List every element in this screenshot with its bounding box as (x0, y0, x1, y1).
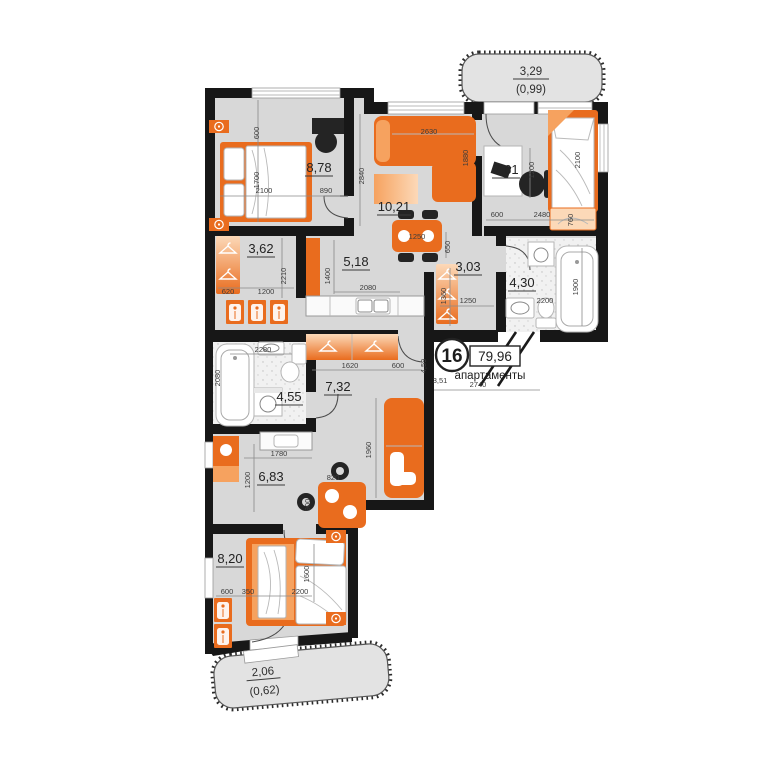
toilet2 (281, 362, 299, 382)
room-label-living: 10,21 (378, 199, 411, 214)
room-label-kitchen2: 6,83 (258, 469, 283, 484)
room-label-bathroom1: 4,30 (509, 275, 534, 290)
pillow (224, 184, 244, 216)
chair (398, 253, 414, 262)
chair (422, 210, 438, 219)
window-bedroom1 (252, 88, 340, 98)
dim: 1600 (302, 566, 311, 583)
unit-area: 79,96 (478, 349, 512, 364)
room-label-corridor: 7,32 (325, 379, 350, 394)
floorplan-apartment: 3,29 (0,99) 2,06 (0,62) (0, 0, 768, 768)
dim: 2200 (537, 296, 554, 305)
dim: 2630 (421, 127, 438, 136)
radiator-icon (209, 120, 229, 133)
radiator-icon (326, 612, 346, 625)
sofa-chaise (432, 162, 476, 202)
dim: 620 (222, 287, 235, 296)
dim: 890 (320, 186, 333, 195)
dim: 1200 (243, 472, 252, 489)
cabinet-icon (270, 300, 288, 324)
sink (506, 298, 534, 318)
pillow (224, 148, 244, 180)
dim: 1960 (364, 442, 373, 459)
kitchen-cabinet (306, 238, 320, 296)
room-label-kitchen: 5,18 (343, 254, 368, 269)
dim: 600 (252, 127, 261, 140)
sofa-cushion (390, 472, 416, 485)
room-label-bedroom1: 8,78 (306, 160, 331, 175)
dim: 650 (443, 241, 452, 254)
unit-number: 16 (441, 346, 462, 367)
unit-type: апартаменты (455, 370, 526, 382)
radiator-icon (209, 218, 229, 231)
dim: 2480 (534, 210, 551, 219)
toilet-tank (536, 318, 556, 328)
dim: 2840 (357, 168, 366, 185)
dim: 1250 (460, 296, 477, 305)
balcony-top-coeff: (0,99) (516, 84, 546, 96)
counter-sink (274, 435, 298, 447)
toilet2-tank (292, 344, 306, 364)
window-living (388, 102, 464, 114)
dim: 2080 (213, 370, 222, 387)
cabinet-icon (214, 598, 232, 622)
dim: 2100 (256, 186, 273, 195)
unit-stamp: 16 79,96 апартаменты (436, 339, 525, 382)
dim: 2200 (292, 587, 309, 596)
balcony-bottom-area: 2,06 (251, 665, 274, 679)
room-label-hall: 3,03 (455, 259, 480, 274)
dim: 1250 (409, 232, 426, 241)
dim: 820 (327, 473, 340, 482)
dim: 2080 (360, 283, 377, 292)
window-kitchen2 (205, 442, 213, 468)
table2 (318, 482, 366, 528)
radiator-icon (326, 530, 346, 543)
dim: 1200 (258, 287, 275, 296)
tv-stand (315, 131, 337, 153)
dim: 1900 (571, 279, 580, 296)
dim: 600 (221, 587, 234, 596)
dim: 1360 (439, 288, 448, 305)
plate (325, 489, 339, 503)
cabinet-icon (226, 300, 244, 324)
dim: 600 (392, 361, 405, 370)
dim: 760 (566, 214, 575, 227)
cabinet-sink (220, 444, 232, 456)
dim: 1400 (323, 268, 332, 285)
room-label-bedroom3: 8,20 (217, 551, 242, 566)
cabinet-icon (214, 624, 232, 648)
dim: 900 (303, 499, 312, 512)
plate (343, 505, 357, 519)
balcony-bottom: 2,06 (0,62) (212, 642, 390, 709)
room-label-bathroom2: 4,55 (276, 389, 301, 404)
dim: 1620 (342, 361, 359, 370)
room-label-bedroom2: 7,61 (493, 162, 518, 177)
dim: 600 (491, 210, 504, 219)
dim: 1880 (461, 150, 470, 167)
balcony-top-area: 3,29 (520, 66, 542, 78)
kitchen2-cabinet-low (213, 466, 239, 482)
balcony-door-top (484, 102, 534, 114)
sofa-armrest (376, 120, 390, 162)
window-bedroom3 (205, 558, 213, 598)
dim: 2210 (279, 268, 288, 285)
balcony-top: 3,29 (0,99) (462, 54, 602, 102)
dim: 4,59 (419, 359, 428, 374)
room-label-dressing: 3,62 (248, 241, 273, 256)
dim: 3,51 (433, 376, 448, 385)
dim: 2280 (255, 345, 272, 354)
dim: 350 (242, 587, 255, 596)
chair (422, 253, 438, 262)
cabinet-icon (248, 300, 266, 324)
dim: 1200 (527, 162, 536, 179)
dim: 1780 (271, 449, 288, 458)
dim: 2100 (573, 152, 582, 169)
